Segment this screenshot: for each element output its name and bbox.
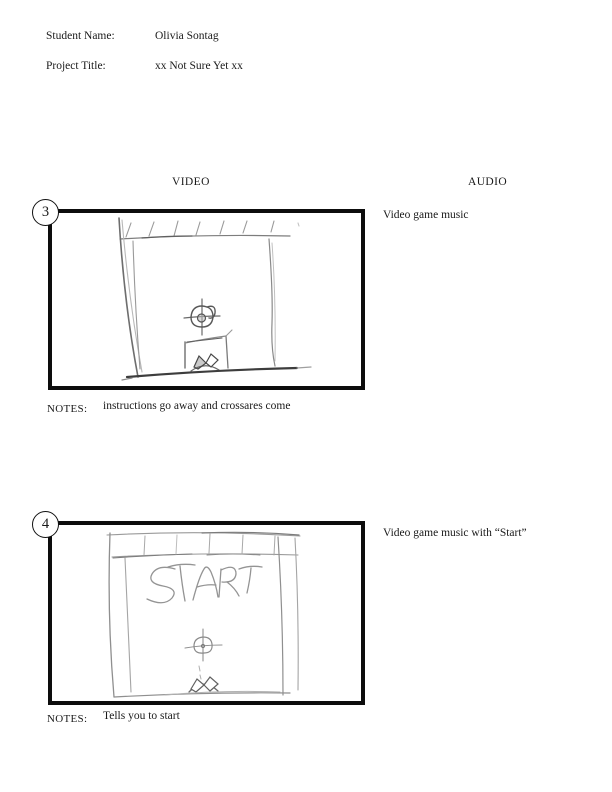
floor-line-sketch <box>127 368 297 377</box>
audio-note: Video game music with “Start” <box>383 527 527 540</box>
crosshair-sketch <box>185 629 222 679</box>
project-title-label: Project Title: <box>46 60 106 73</box>
start-text-sketch <box>147 564 262 602</box>
video-column-header: VIDEO <box>172 176 210 188</box>
bow-sketch <box>189 677 218 692</box>
ceiling-hatches-sketch <box>126 221 299 237</box>
bow-sketch <box>191 354 219 371</box>
project-title-value: xx Not Sure Yet xx <box>155 60 243 73</box>
frame-3-sketch <box>52 213 361 386</box>
storyboard-frame-3 <box>48 209 365 390</box>
student-name-value: Olivia Sontag <box>155 30 219 43</box>
frame-4-sketch <box>52 525 361 701</box>
frame-number: 3 <box>42 204 49 221</box>
storyboard-frame-4 <box>48 521 365 705</box>
floor-line-sketch <box>114 693 290 697</box>
audio-column-header: AUDIO <box>468 176 507 188</box>
frame-number: 4 <box>42 516 49 533</box>
ceiling-band-sketch <box>107 532 300 558</box>
notes-label: NOTES: <box>47 403 87 415</box>
student-name-label: Student Name: <box>46 30 115 43</box>
right-wall-sketch <box>269 239 275 366</box>
frame-number-badge: 3 <box>32 199 59 226</box>
walls-sketch <box>109 533 298 697</box>
notes-text: instructions go away and crossares come <box>103 400 290 413</box>
crosshair-sketch <box>184 299 220 335</box>
notes-text: Tells you to start <box>103 710 180 723</box>
audio-note: Video game music <box>383 209 469 222</box>
storyboard-page: Student Name: Olivia Sontag Project Titl… <box>0 0 612 792</box>
frame-number-badge: 4 <box>32 511 59 538</box>
notes-label: NOTES: <box>47 713 87 725</box>
